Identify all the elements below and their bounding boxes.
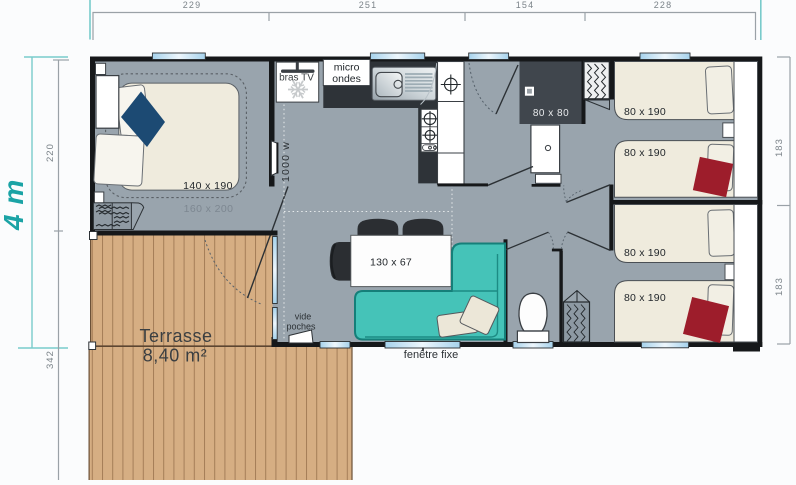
svg-text:251: 251	[359, 0, 378, 10]
svg-text:229: 229	[183, 0, 202, 10]
svg-text:80 x 190: 80 x 190	[624, 147, 666, 159]
svg-text:342: 342	[45, 350, 56, 369]
svg-text:Terrasse: Terrasse	[139, 326, 212, 346]
svg-text:80 x 190: 80 x 190	[624, 292, 666, 304]
svg-text:vide: vide	[295, 312, 312, 322]
svg-text:183: 183	[774, 138, 785, 157]
svg-text:130 x 67: 130 x 67	[370, 257, 412, 269]
svg-text:140 x 190: 140 x 190	[183, 180, 233, 192]
svg-text:ondes: ondes	[332, 73, 361, 85]
svg-text:183: 183	[774, 277, 785, 296]
svg-text:80 x 190: 80 x 190	[624, 247, 666, 259]
svg-text:8,40 m²: 8,40 m²	[143, 346, 208, 366]
svg-text:160 x 200: 160 x 200	[184, 203, 234, 215]
svg-text:fenêtre fixe: fenêtre fixe	[404, 349, 458, 361]
svg-text:154: 154	[516, 0, 535, 10]
svg-text:80 x 80: 80 x 80	[533, 108, 569, 119]
svg-text:228: 228	[654, 0, 673, 10]
svg-text:micro: micro	[334, 62, 360, 74]
svg-text:80 x 190: 80 x 190	[624, 106, 666, 118]
svg-text:220: 220	[45, 143, 56, 162]
svg-text:1000 w: 1000 w	[280, 141, 292, 182]
svg-text:4 m: 4 m	[0, 179, 29, 231]
